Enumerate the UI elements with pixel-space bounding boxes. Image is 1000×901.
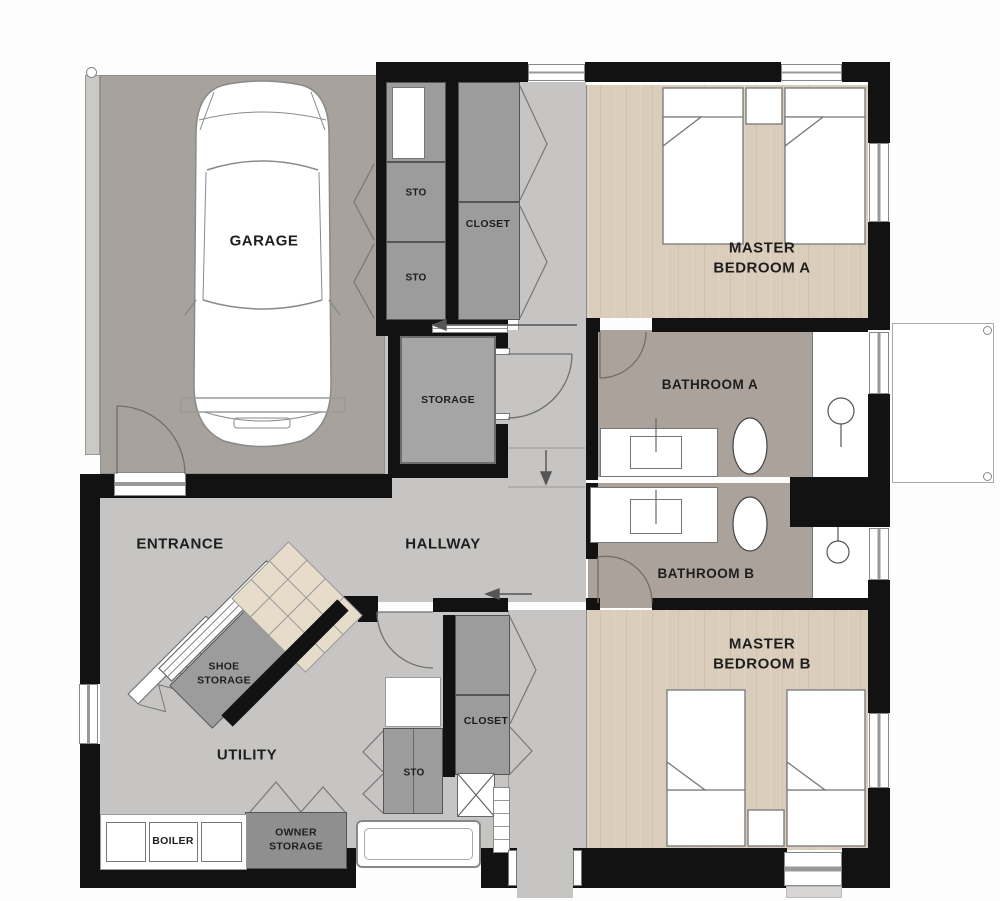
plan-linework xyxy=(0,0,1000,901)
direction-arrows xyxy=(433,320,585,599)
nightstand-icon xyxy=(748,810,784,846)
room-label-bathroom-b: BATHROOM B xyxy=(658,565,755,583)
bed-icon xyxy=(785,88,865,244)
room-label-bathroom-a: BATHROOM A xyxy=(662,376,759,394)
room-label-closet-top: CLOSET xyxy=(466,218,510,232)
shower-head-a-icon xyxy=(828,398,854,424)
x-appliance-icon xyxy=(458,774,494,816)
bathroom-b-door-arc xyxy=(598,556,652,603)
bed-icon xyxy=(787,690,865,846)
staircase-assembly xyxy=(128,542,362,728)
room-label-boiler: BOILER xyxy=(152,835,193,849)
utility-closet-door-arc xyxy=(377,612,433,668)
bathroom-a-door-arc xyxy=(600,332,646,378)
toilet-b-icon xyxy=(733,497,767,551)
bed-icon xyxy=(667,690,745,846)
floor-plan: GARAGE STO STO CLOSET MASTER BEDROOM A S… xyxy=(0,0,1000,901)
room-label-entrance: ENTRANCE xyxy=(136,534,223,554)
room-label-utility: UTILITY xyxy=(217,745,277,765)
garage-door-arc xyxy=(117,406,185,474)
room-label-owner-storage: OWNER STORAGE xyxy=(269,826,323,853)
shower-head-b-icon xyxy=(827,541,849,563)
room-label-sto-a: STO xyxy=(406,187,427,200)
storage-door-arc xyxy=(508,354,572,418)
room-label-hallway: HALLWAY xyxy=(405,534,480,554)
room-label-closet-bottom: CLOSET xyxy=(464,715,508,729)
bed-icon xyxy=(663,88,743,244)
room-label-master-bedroom-b: MASTER BEDROOM B xyxy=(713,635,811,674)
room-label-sto-bottom: STO xyxy=(404,767,425,780)
room-label-garage: GARAGE xyxy=(230,231,299,251)
beds xyxy=(663,88,865,846)
room-label-master-bedroom-a: MASTER BEDROOM A xyxy=(713,239,810,278)
car-icon xyxy=(185,81,340,447)
toilet-a-icon xyxy=(733,418,767,474)
nightstand-icon xyxy=(746,88,782,124)
room-label-shoe-storage: SHOE STORAGE xyxy=(197,660,251,687)
room-label-sto-b: STO xyxy=(406,272,427,285)
room-label-storage: STORAGE xyxy=(421,394,475,408)
